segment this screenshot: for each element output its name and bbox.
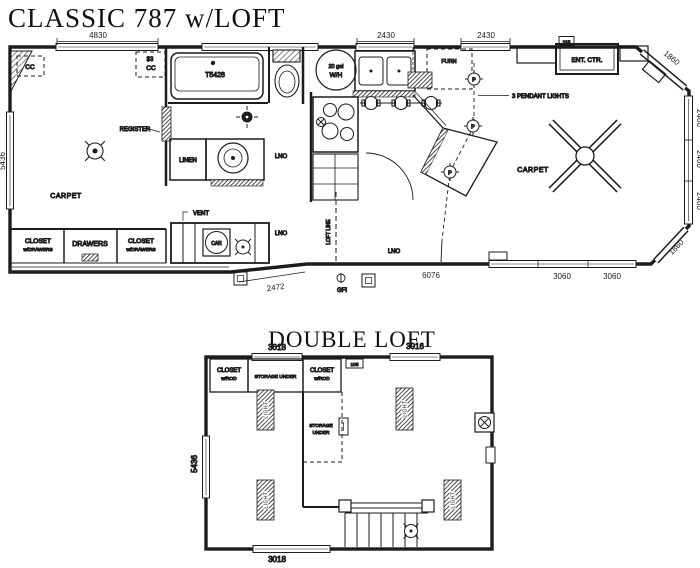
loft-storage-mid-label-1: STORAGE [309,423,332,429]
closet-right-label-2: w/DRAWERS [126,247,155,253]
cc-right-label-1: $3 [147,57,154,63]
loft-windows [203,354,496,553]
floor-plan-sheet: CLASSIC 787 w/LOFT DOUBLE LOFT [0,0,700,568]
water-heater-label-2: W/H [330,72,343,79]
closet-left-label-1: CLOSET [25,238,51,245]
kitchen-floor-label: LNO [388,249,401,255]
loft-interior [210,359,494,547]
pendant-p-2: P [471,125,475,131]
dim-kitchen-window-2: 2430 [477,31,495,40]
loft-light-label-1: LIGHT [264,401,270,418]
bath-ceiling-light-icon [236,106,258,128]
bedroom-floor-label: CARPET [50,193,82,200]
floor-register [82,254,98,261]
cc-right-label-2: CC [146,65,156,72]
ent-ctr-label: ENT. CTR. [571,57,602,64]
loft-dim-top-left: 3018 [268,343,286,352]
drawers-label: DRAWERS [72,241,108,248]
dim-entry-wall: 2472 [266,282,285,293]
stove [313,97,358,152]
tub-drain [211,61,215,65]
bedroom [10,47,171,263]
heat-register [162,107,171,141]
dim-top-window: 4830 [89,31,107,40]
loft-closet-left [210,359,248,392]
living-floor-label: CARPET [517,167,549,174]
stairwell-light-icon [404,524,419,539]
dim-bottom-wall: 6076 [422,271,440,280]
register-label: REGISTER [120,127,151,133]
ceiling-fan-icon [551,122,619,190]
dim-kitchen-window-1: 2430 [377,31,395,40]
bathroom-labels: T5428 LINEN LNO [179,72,287,164]
loft-closet-right-label-1: CLOSET [310,368,334,374]
corner-wardrobe [11,51,32,91]
gfi-label: GFI [337,288,347,294]
pendant-p-3: P [448,171,452,177]
loft-dimension-labels: 3018 3016 5436 3018 [190,342,424,564]
loft-closet-left-label-1: CLOSET [217,368,241,374]
loft-dim-left: 5436 [190,455,199,473]
loft-line-label: LOFT LINE [326,219,332,245]
dim-right-chamfer-top: 1860 [662,49,682,68]
closet-right-label-1: CLOSET [128,238,154,245]
loft-access-label: 105 [350,362,358,368]
vent-label: VENT [193,211,209,217]
gfi-outlet-icon [337,273,345,283]
dim-bottom-window-1: 3060 [553,272,571,281]
dim-right-chamfer-bottom: 1860 [667,237,686,256]
loft-closet-right-label-2: w/ROD [314,376,330,382]
water-heater [316,50,356,90]
floor-plan-drawing: CLASSIC 787 w/LOFT DOUBLE LOFT [0,0,700,568]
vanity-sink [206,139,264,186]
hall-floor-label: LNO [275,231,288,237]
dim-left-wall: 5436 [0,152,7,170]
main-floor-plan: 4830 2430 2430 5436 1860 2460 2460 2460 … [0,31,700,294]
dim-right-window-3: 2460 [695,192,700,210]
kitchen [311,47,509,262]
kitchen-sink [355,51,415,91]
loft-dim-top-right: 3016 [406,342,424,351]
cc-left-label: CC [25,64,35,71]
water-heater-label-1: 20 gal [329,64,344,70]
loft-closet-right [303,359,341,392]
pendant-p-1: P [472,78,476,84]
counter-edge [353,91,415,97]
furnace-chase [408,72,432,88]
snack-bar-counter [413,93,497,197]
furnace-box [427,49,472,89]
loft-stairwell [339,500,434,547]
loft-light-label-4: LIGHT [451,491,457,508]
corner-shelf [642,61,665,83]
loft-closet-left-label-2: w/ROD [221,376,237,382]
loft-dim-bottom: 3018 [268,555,286,564]
dim-right-window-1: 2460 [695,109,700,127]
loft-labels: CLOSET w/ROD STORAGE UNDER CLOSET w/ROD … [217,362,457,509]
ceiling-light-icon [85,141,105,161]
pendant-note-label: 3 PENDANT LIGHTS [512,94,569,100]
loft-exhaust-fan-icon [475,413,494,432]
main-plan-title: CLASSIC 787 w/LOFT [8,3,286,33]
dim-right-window-2: 2460 [695,150,700,168]
door-swing-arc [366,153,413,200]
dim-bottom-window-2: 3060 [603,272,621,281]
linen-label: LINEN [179,158,197,164]
closet-left-label-2: w/DRAWERS [23,247,52,253]
loft-storage-top-label: STORAGE UNDER [255,374,297,380]
stair-light-icon [235,239,251,255]
bath-floor-label: LNO [275,154,288,160]
toilet [273,50,300,97]
furnace-label: FURN [441,59,456,65]
tub-model-label: T5428 [205,72,225,79]
loft-light-label-2: LIGHT [403,400,409,417]
tv-outlet-label: 115 [563,40,571,46]
bathroom [168,47,303,186]
loft-storage-mid-label-2: UNDER [312,430,330,436]
loft-light-label-3: LIGHT [264,491,270,508]
co-detector-label: CAR [211,241,222,247]
loft-floor-plan: 3018 3016 5436 3018 [190,342,495,564]
